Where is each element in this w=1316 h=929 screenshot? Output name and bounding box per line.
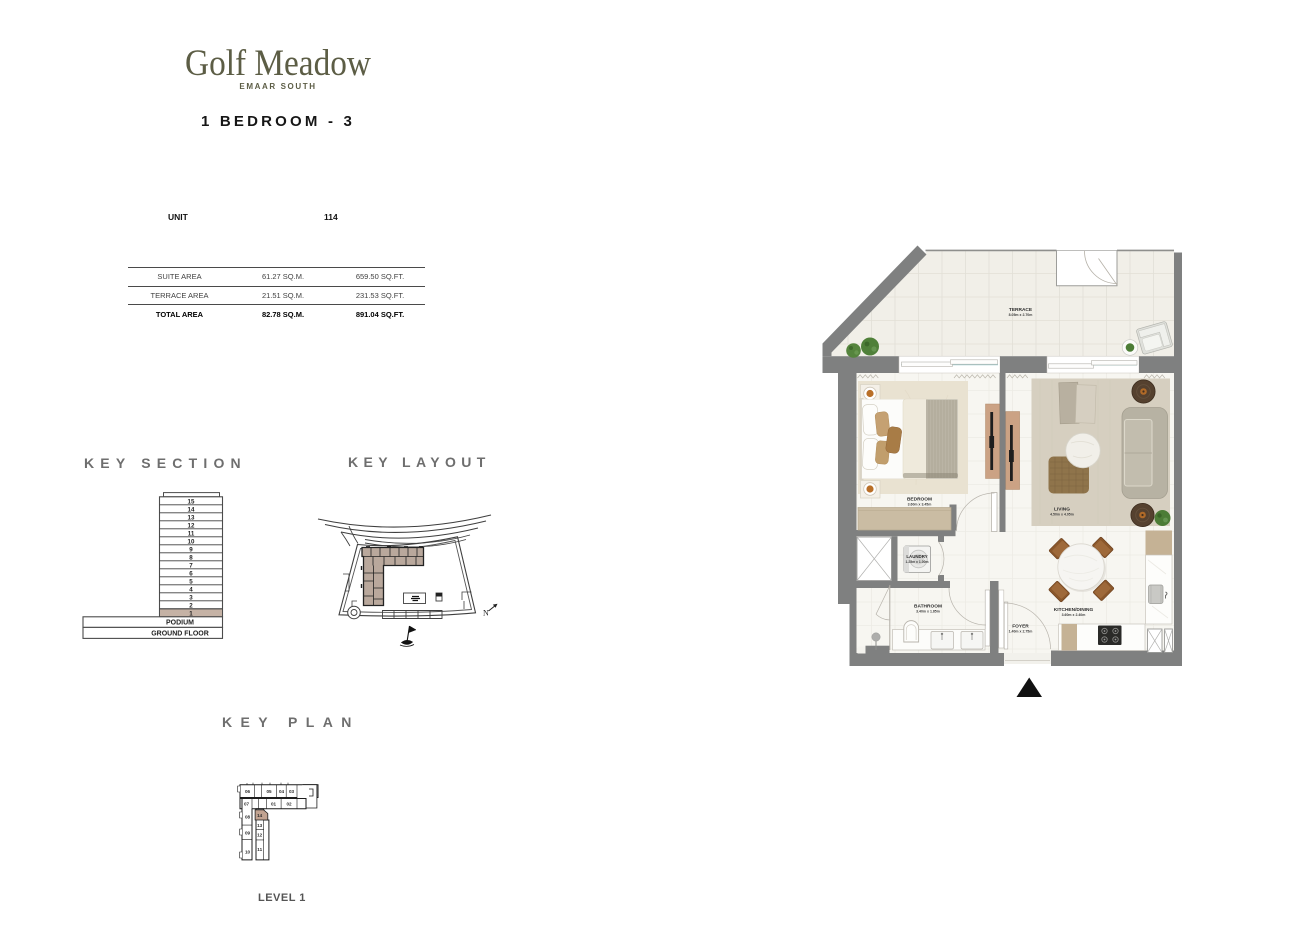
svg-text:11: 11 xyxy=(188,531,195,538)
svg-text:4.50m x 4.05m: 4.50m x 4.05m xyxy=(1050,512,1074,516)
svg-text:03: 03 xyxy=(289,789,295,794)
svg-text:12: 12 xyxy=(257,833,263,838)
svg-text:13: 13 xyxy=(188,515,195,522)
svg-text:07: 07 xyxy=(244,802,250,807)
svg-text:2: 2 xyxy=(189,603,193,610)
svg-text:09: 09 xyxy=(245,831,251,836)
svg-text:4: 4 xyxy=(189,587,193,594)
svg-text:1.40m x 2.75m: 1.40m x 2.75m xyxy=(1009,629,1033,633)
svg-text:1.25m x 1.00m: 1.25m x 1.00m xyxy=(906,560,929,564)
svg-text:13: 13 xyxy=(257,823,263,828)
svg-text:10: 10 xyxy=(188,539,195,546)
svg-text:10: 10 xyxy=(245,850,251,855)
svg-text:05: 05 xyxy=(266,789,272,794)
svg-text:8.05m x 2.70m: 8.05m x 2.70m xyxy=(1009,313,1033,317)
svg-text:02: 02 xyxy=(286,802,292,807)
svg-text:11: 11 xyxy=(257,847,262,852)
svg-text:9: 9 xyxy=(189,547,193,554)
svg-text:14: 14 xyxy=(257,813,263,818)
svg-text:7: 7 xyxy=(189,563,193,570)
svg-text:LAUNDRY: LAUNDRY xyxy=(906,554,927,559)
svg-text:15: 15 xyxy=(188,499,195,506)
svg-text:3.60m x 3.45m: 3.60m x 3.45m xyxy=(908,502,932,506)
svg-text:5: 5 xyxy=(189,579,193,586)
svg-text:04: 04 xyxy=(279,789,285,794)
svg-text:PODIUM: PODIUM xyxy=(166,620,194,627)
svg-text:08: 08 xyxy=(245,815,251,820)
svg-text:14: 14 xyxy=(188,507,195,514)
svg-text:3: 3 xyxy=(189,595,193,602)
svg-text:N: N xyxy=(483,609,489,618)
svg-text:06: 06 xyxy=(245,789,251,794)
svg-text:01: 01 xyxy=(271,802,277,807)
svg-text:12: 12 xyxy=(188,523,195,530)
svg-text:3.60m x 2.40m: 3.60m x 2.40m xyxy=(1062,613,1086,617)
svg-text:6: 6 xyxy=(189,571,193,578)
svg-text:GROUND FLOOR: GROUND FLOOR xyxy=(151,631,209,638)
svg-text:3.40m x 1.85m: 3.40m x 1.85m xyxy=(916,609,940,613)
svg-text:8: 8 xyxy=(189,555,193,562)
